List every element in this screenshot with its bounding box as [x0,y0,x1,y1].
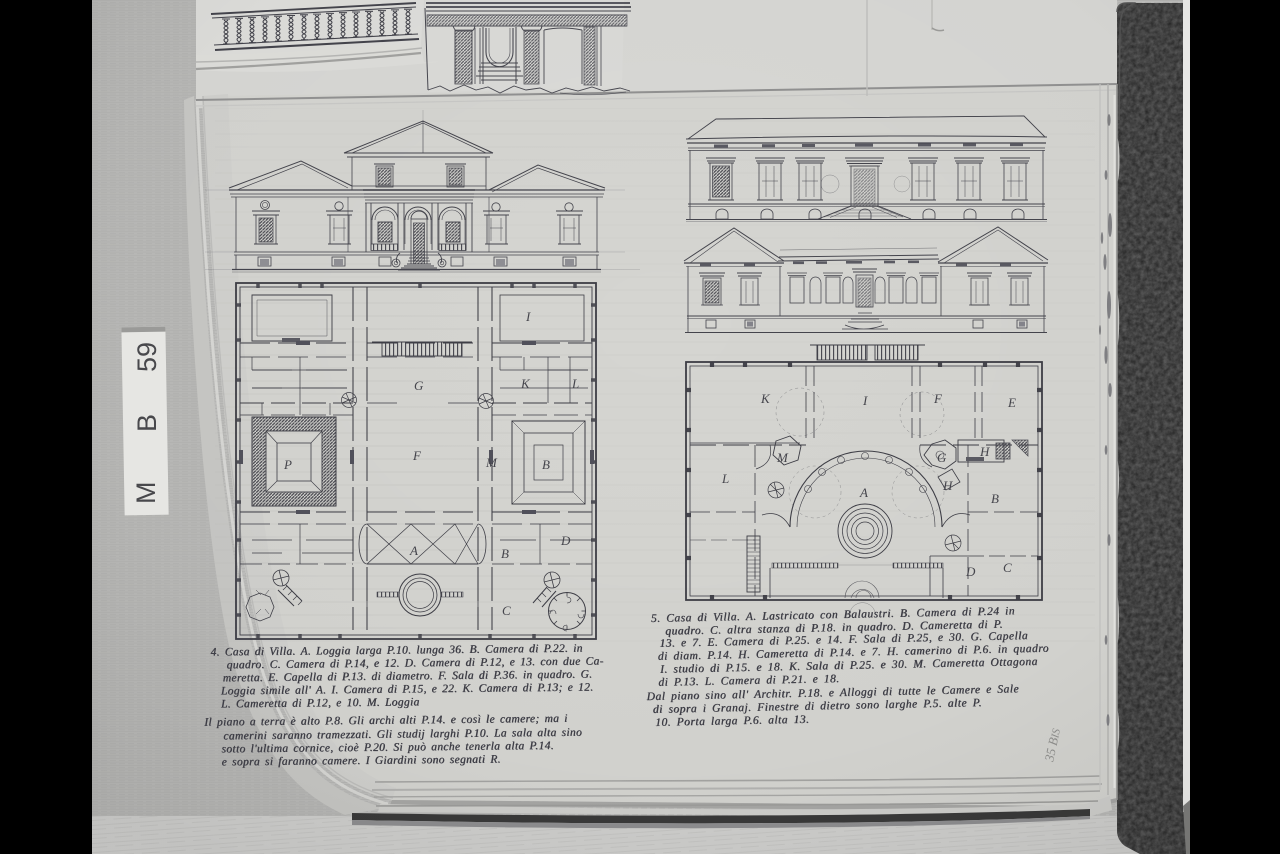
svg-text:D: D [560,533,571,548]
svg-text:C: C [502,603,511,618]
svg-text:L: L [721,471,729,486]
svg-text:E: E [1007,395,1016,410]
svg-text:F: F [933,391,943,406]
svg-text:H: H [942,478,953,493]
svg-text:K: K [520,376,531,391]
svg-text:I: I [862,393,868,408]
svg-text:A: A [859,485,868,500]
svg-text:A: A [409,543,418,558]
svg-text:D: D [965,564,976,579]
svg-text:G: G [937,450,947,465]
svg-text:B: B [501,546,509,561]
svg-text:M: M [776,450,789,465]
svg-text:B: B [542,457,550,472]
svg-text:G: G [414,378,424,393]
svg-text:B: B [991,491,999,506]
svg-text:L: L [571,376,579,391]
svg-text:M: M [485,455,498,470]
svg-text:P: P [283,457,292,472]
svg-text:F: F [412,448,422,463]
svg-text:K: K [760,391,771,406]
svg-text:H: H [979,444,990,459]
svg-text:C: C [1003,560,1012,575]
svg-text:I: I [525,309,531,324]
